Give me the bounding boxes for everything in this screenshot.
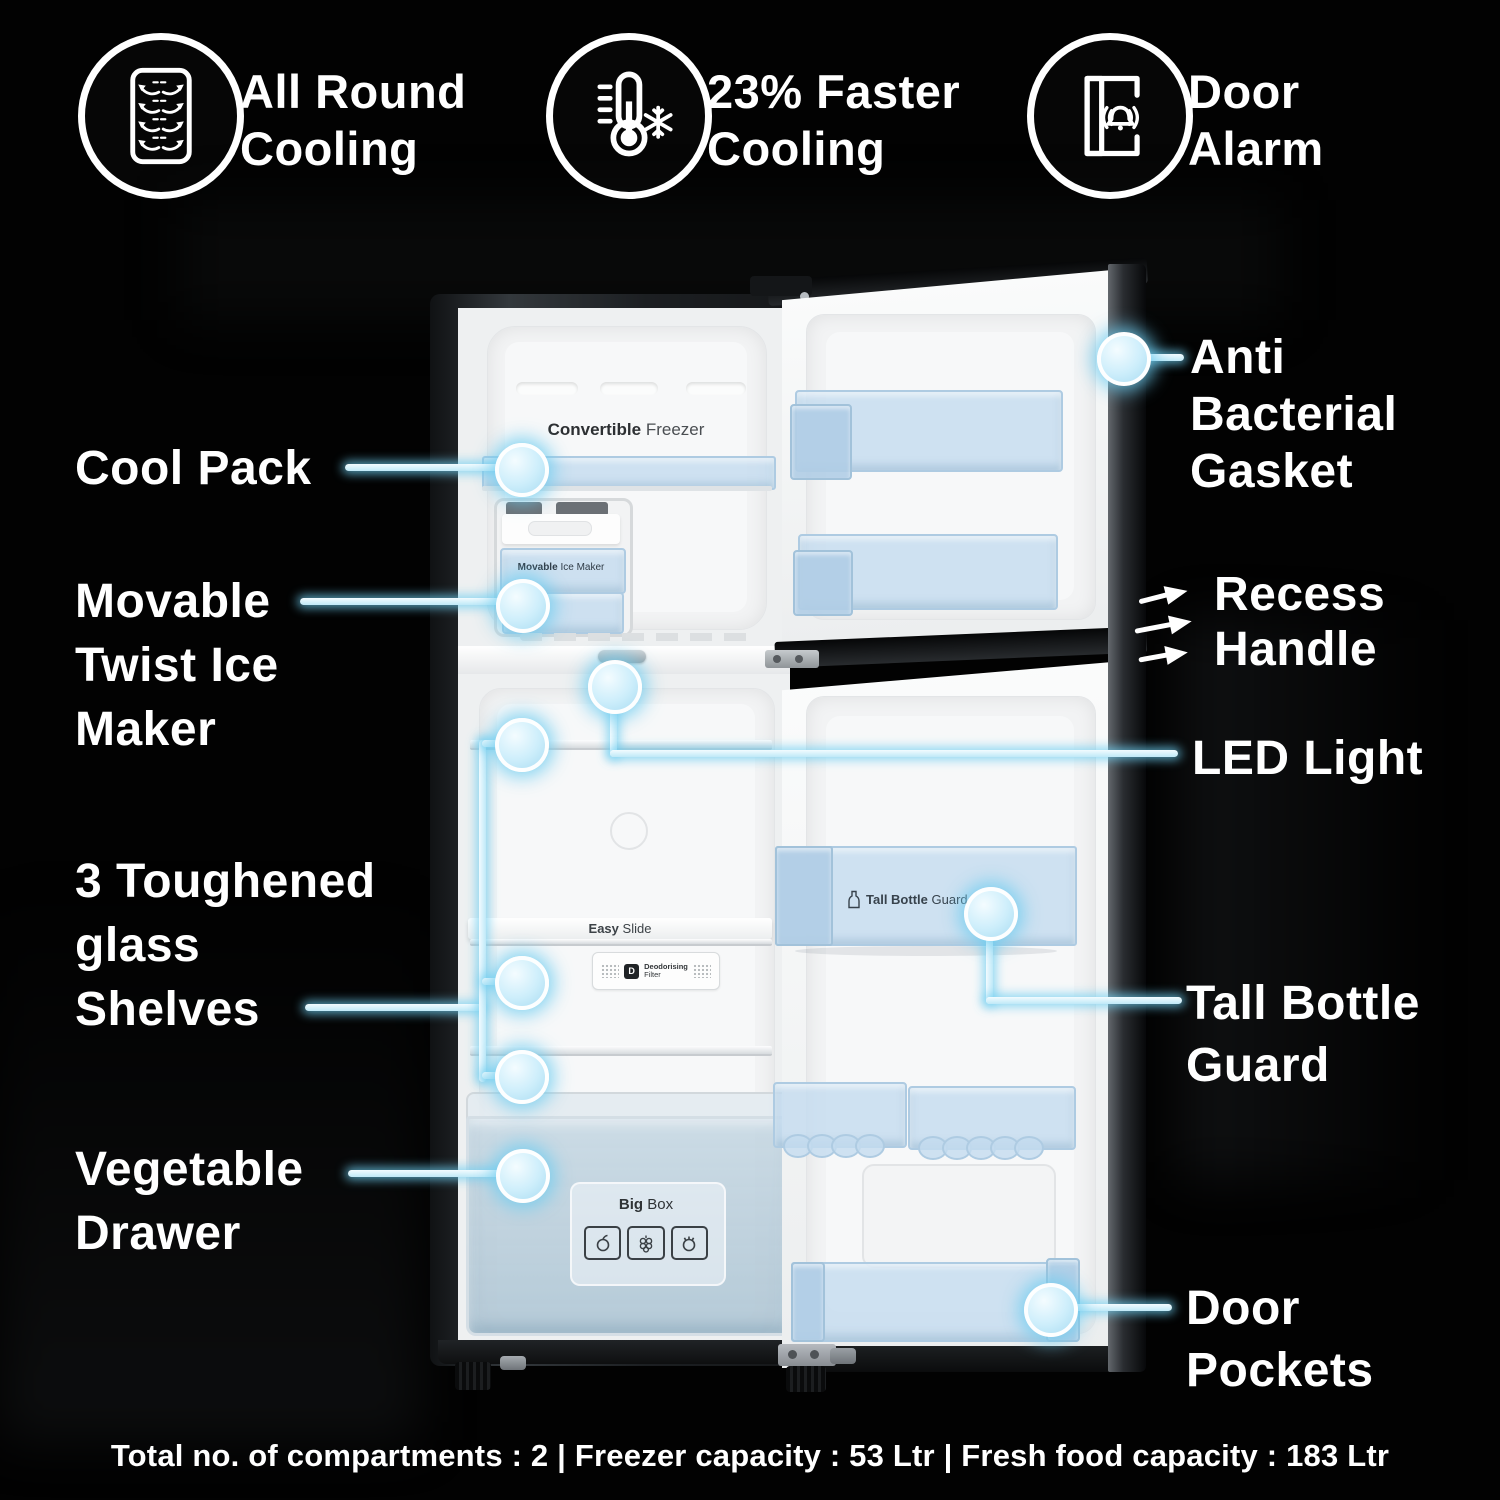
filter-chip-icon: D xyxy=(624,964,639,979)
ice-maker-label: MovableIce Maker xyxy=(500,562,622,573)
back-panel-circle xyxy=(610,812,648,850)
left-foot xyxy=(455,1362,491,1390)
callout-dot-vegetable-drawer xyxy=(496,1149,550,1203)
callout-dot-shelf-2 xyxy=(495,956,549,1010)
door-tray-right-scallops xyxy=(918,1136,1038,1160)
door-tray-left-scallops xyxy=(783,1134,879,1158)
callout-dot-cool-pack xyxy=(495,443,549,497)
glass-shelf-2[interactable] xyxy=(470,939,772,946)
label-toughened-glass-shelves: 3 Toughened glass Shelves xyxy=(75,850,376,1042)
freezer-door-bin-1-cup xyxy=(790,404,852,480)
hinge-screw xyxy=(810,1350,819,1359)
freezer-compartment-label: ConvertibleFreezer xyxy=(487,420,765,440)
callout-dot-shelf-1 xyxy=(495,718,549,772)
hinge-screw xyxy=(795,655,803,663)
bin-shadow xyxy=(795,946,1057,956)
callout-dot-ice-maker xyxy=(496,579,550,633)
infographic-root: All Round Cooling 23% Faster Cooling xyxy=(0,0,1500,1500)
callout-dot-led xyxy=(588,660,642,714)
label-tall-bottle-guard: Tall Bottle Guard xyxy=(1186,973,1420,1097)
bottle-icon xyxy=(848,890,860,909)
freezer-vent-slot xyxy=(686,382,746,395)
fridge-door-inner-recess xyxy=(862,1164,1056,1268)
label-anti-bacterial-gasket: Anti Bacterial Gasket xyxy=(1190,329,1397,500)
callout-line-led xyxy=(610,750,1178,757)
hinge-screw xyxy=(788,1350,797,1359)
callout-line-ice-maker xyxy=(300,598,526,605)
freezer-vent-slot xyxy=(516,382,578,395)
bottom-door-pocket-left-cap xyxy=(791,1262,825,1342)
label-vegetable-drawer: Vegetable Drawer xyxy=(75,1138,304,1266)
filter-dot-grid xyxy=(601,964,619,978)
callout-dot-door-pockets xyxy=(1024,1283,1078,1337)
callout-line-shelves xyxy=(305,1004,485,1011)
bottom-hinge-bracket xyxy=(778,1344,836,1366)
deodorising-filter: D DeodorisingFilter xyxy=(592,952,720,990)
freezer-vent-slot xyxy=(600,382,658,395)
apple-icon xyxy=(584,1226,621,1260)
callout-line-tall-bottle xyxy=(986,997,1182,1004)
label-cool-pack: Cool Pack xyxy=(75,437,312,501)
leveling-screw xyxy=(500,1356,526,1370)
onion-icon xyxy=(671,1226,708,1260)
label-led-light: LED Light xyxy=(1192,727,1423,791)
grapes-icon xyxy=(627,1226,664,1260)
easy-slide-label: EasySlide xyxy=(468,921,772,936)
leveling-cylinder xyxy=(830,1348,856,1364)
door-foot xyxy=(786,1366,826,1392)
hinge-screw xyxy=(773,655,781,663)
filter-label: DeodorisingFilter xyxy=(644,963,688,979)
callout-dot-shelf-3 xyxy=(495,1050,549,1104)
callout-dot-tall-bottle xyxy=(964,887,1018,941)
callout-branch-shelves xyxy=(479,740,486,1082)
ice-maker-handle-slot xyxy=(528,521,592,536)
cabinet-base xyxy=(438,1340,788,1364)
freezer-floor-vents xyxy=(520,633,750,641)
freezer-door-bin-2-cup xyxy=(793,550,853,616)
capacity-specs: Total no. of compartments : 2 | Freezer … xyxy=(0,1438,1500,1474)
label-recess-handle: Recess Handle xyxy=(1214,567,1385,677)
drawer-label: BigBox xyxy=(570,1196,722,1213)
label-door-pockets: Door Pockets xyxy=(1186,1278,1374,1402)
filter-dot-grid xyxy=(693,964,711,978)
tall-bottle-guard-label: Tall BottleGuard xyxy=(848,890,968,909)
drawer-food-icons xyxy=(584,1226,708,1260)
tall-bottle-guard-left-cap xyxy=(775,846,833,946)
recess-handle-arrow xyxy=(1137,640,1193,672)
recess-handle-door-edge[interactable] xyxy=(1108,264,1146,1372)
label-movable-twist-ice-maker: Movable Twist Ice Maker xyxy=(75,570,279,762)
callout-dot-gasket xyxy=(1097,332,1151,386)
